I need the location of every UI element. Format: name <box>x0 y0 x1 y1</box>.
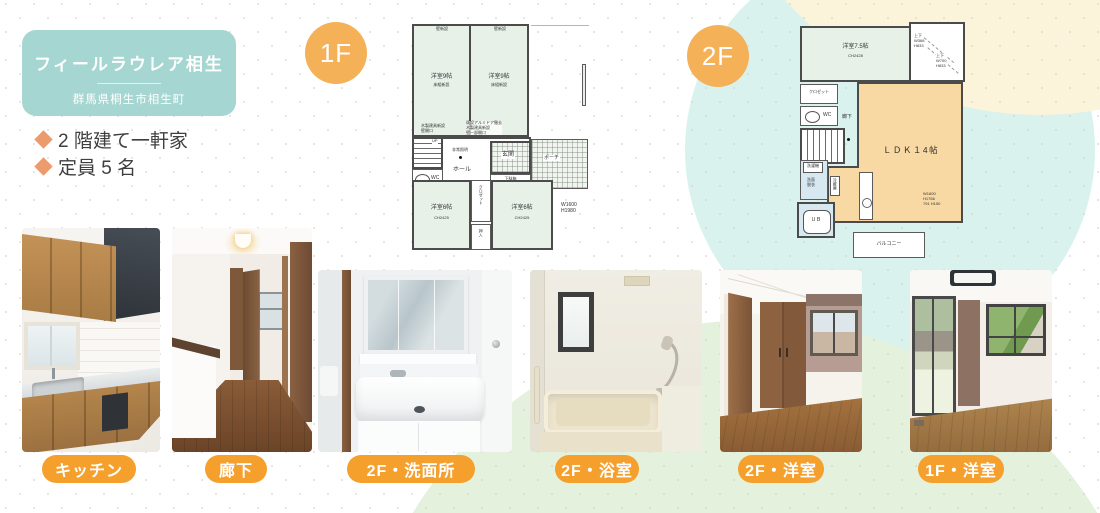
diamond-bullet-icon <box>34 157 52 175</box>
plan1f-stairs <box>412 137 443 169</box>
plan2f-updown2: 上下 W700 H833 <box>936 54 946 68</box>
closet-handle <box>786 348 788 357</box>
diamond-bullet-icon <box>34 130 52 148</box>
plan1f-note-left: 木製建具新設 壁開口 <box>421 124 445 134</box>
hallway-window <box>258 292 284 330</box>
plan2f-wc-label: WC <box>823 112 831 118</box>
kitchen-window-sash <box>50 326 52 366</box>
photo-bathroom <box>530 270 702 452</box>
plan1f-note-right: 既設アルミドア撤去 木製建具新設 壁一部開口 <box>466 121 502 135</box>
plan2f-ldk-label: ＬＤＫ１4帖 <box>875 145 947 155</box>
plan1f-up-label: UP <box>432 139 438 144</box>
plan1f-wall-note-a: 壁新設 <box>424 27 460 32</box>
property-address: 群馬県桐生市相生町 <box>22 91 236 107</box>
basin-drain <box>414 406 425 413</box>
photo-label-hallway: 廊下 <box>205 455 267 483</box>
plan1f-side-window <box>582 64 586 106</box>
vanity-shelf <box>360 354 476 364</box>
bathtub-inner <box>556 398 650 426</box>
sliding-glass-door <box>912 296 956 416</box>
plan2f-closet-label: クロゼット <box>800 90 838 95</box>
vanity-panel <box>360 364 478 377</box>
kitchen-upper-cabinets <box>22 234 116 322</box>
photo-kitchen <box>22 228 160 452</box>
plan2f-fridge-label: 冷蔵庫 <box>832 178 837 190</box>
grab-bar-icon <box>534 366 540 424</box>
garden-window-sash <box>1014 307 1016 353</box>
feature-building-type: 2 階建て一軒家 <box>58 126 188 153</box>
feature-capacity: 定員 5 名 <box>58 153 136 180</box>
garden-window <box>986 304 1046 356</box>
ceiling-light-panel <box>954 273 992 283</box>
bath-right-ledge <box>662 386 702 452</box>
sink-icon <box>862 198 872 208</box>
title-divider <box>97 83 161 84</box>
plan1f-room-d-sub: CH2425 <box>491 216 553 221</box>
photo-washroom <box>318 270 512 452</box>
property-title-box: フィールラウレア相生 群馬県桐生市相生町 <box>22 30 236 116</box>
plan1f-room-b-sub: 床組新設 <box>469 83 529 88</box>
photo-2f-room <box>720 270 862 452</box>
plan1f-oshiire-label: 押入 <box>478 229 483 237</box>
garden-window-bar <box>989 336 1043 338</box>
closet-handle <box>779 348 781 357</box>
plan1f-entrance-label: 玄関 <box>501 152 515 159</box>
hallway-open-door <box>243 269 260 382</box>
bathroom-left-wall-edge <box>530 270 545 452</box>
photo-label-2f-bathroom: 2F・浴室 <box>555 455 639 483</box>
plan2f-stairs <box>800 128 845 164</box>
hallway-right-door <box>290 242 312 422</box>
plan1f-roofline <box>531 25 589 26</box>
plan1f-emergency-label: 非常照明 <box>452 148 468 153</box>
plan1f-room-a-sub: 床組新設 <box>412 83 471 88</box>
plan2f-balcony-label: バルコニー <box>853 241 925 247</box>
mirror-seam <box>398 280 399 350</box>
photo-hallway <box>172 228 312 452</box>
bathtub-apron <box>540 432 664 452</box>
stair-half-wall <box>172 346 216 438</box>
kitchen-faucet <box>52 368 55 379</box>
plan1f-porch-label: ポーチ <box>543 155 560 161</box>
plan2f-hallway-label: 廊下 <box>842 114 852 120</box>
hallway-window-bar <box>259 308 283 310</box>
floor-plan-1f: 壁新設 壁新設 洋室9帖 床組新設 洋室9帖 床組新設 木製建具新設 壁開口 既… <box>405 22 597 254</box>
plan1f-room-c-sub: CH2425 <box>412 216 471 221</box>
floor-badge-2f: 2F <box>687 25 749 87</box>
plan2f-kitchen-counter <box>859 172 873 220</box>
door-handle-icon <box>492 340 500 348</box>
sliding-door-bar <box>932 299 934 413</box>
ceiling-vent-icon <box>624 276 650 286</box>
plan1f-wall-note-b: 壁新設 <box>482 27 518 32</box>
plan2f-updown1: 上下 W368 H833 <box>914 34 924 48</box>
kitchen-oven <box>102 392 128 431</box>
hallway-far-door <box>230 268 243 370</box>
plan2f-washer-label: 洗濯機 <box>803 164 823 169</box>
photo-label-2f-room: 2F・洋室 <box>738 455 824 483</box>
washroom-door-glimpse <box>318 270 344 452</box>
plan1f-closet-label: クロゼット <box>478 185 483 205</box>
floor-plan-2f: 上下 W368 H833 上下 W700 H833 洋室7.5帖 CH2428 … <box>795 20 973 262</box>
bathroom-window <box>558 292 594 352</box>
closet-doors <box>760 302 806 408</box>
washroom-right-wall <box>482 270 512 452</box>
plan2f-room-sub: CH2428 <box>800 54 911 59</box>
open-door <box>728 293 752 421</box>
floor-badge-1f: 1F <box>305 22 367 84</box>
plan1f-room-b-label: 洋室9帖 <box>469 74 529 81</box>
plan1f-room-a-label: 洋室9帖 <box>412 74 471 81</box>
emergency-light-dot <box>459 156 462 159</box>
vanity-faucet <box>390 370 406 377</box>
vanity-cabinet <box>358 421 480 452</box>
property-name: フィールラウレア相生 <box>22 50 236 75</box>
washroom-door-frame <box>342 270 351 452</box>
washroom-bath-edge <box>320 366 338 396</box>
photo-label-kitchen: キッチン <box>42 455 136 483</box>
vanity-basin <box>356 377 484 421</box>
kitchen-window <box>24 322 80 370</box>
plan1f-oshiire <box>471 224 491 250</box>
photo-1f-room <box>910 270 1052 452</box>
plan1f-window-note: W1600 H1980 <box>561 202 577 214</box>
plan1f-hall-label: ホール <box>453 167 471 174</box>
cabinet-door-line <box>418 423 419 451</box>
vanity-mirror <box>364 276 468 354</box>
plan2f-room-label: 洋室7.5帖 <box>800 44 911 51</box>
photo-label-1f-room: 1F・洋室 <box>918 455 1004 483</box>
window-sash <box>833 313 835 353</box>
interior-accent-wall <box>958 300 980 406</box>
mirror-seam <box>434 280 435 350</box>
accent-wall-header <box>806 294 862 306</box>
plan1f-room-d-label: 洋室6帖 <box>491 205 553 212</box>
plan2f-senmen-label: 洗面 脱衣 <box>807 178 815 188</box>
plan2f-ub-label: ＵＢ <box>803 217 829 223</box>
plan1f-room-c-label: 洋室6帖 <box>412 205 471 212</box>
plan2f-window-note: W1600 H1766 791 H150 <box>923 192 940 206</box>
photo-label-2f-washroom: 2F・洗面所 <box>347 455 475 483</box>
flyer-canvas: フィールラウレア相生 群馬県桐生市相生町 2 階建て一軒家 定員 5 名 1F … <box>0 0 1100 513</box>
toilet-icon <box>805 111 820 123</box>
emergency-light-dot <box>847 138 850 141</box>
floor-item <box>914 420 924 426</box>
